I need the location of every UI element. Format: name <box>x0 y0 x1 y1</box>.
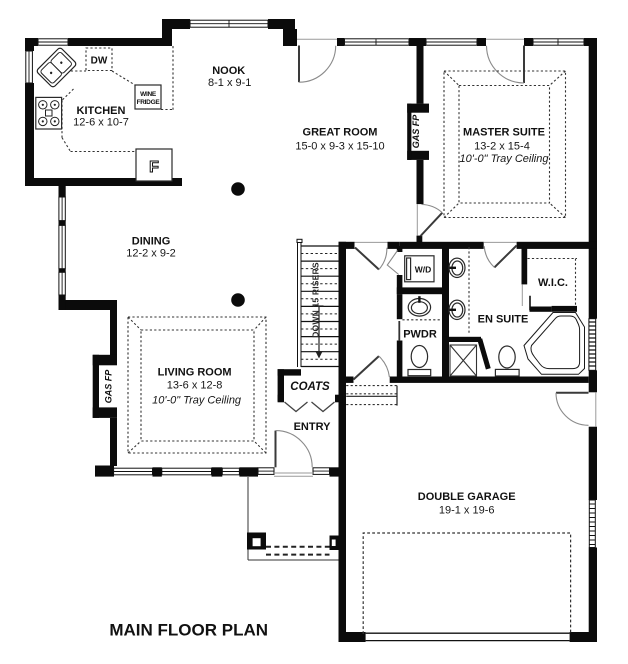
svg-text:EN SUITE: EN SUITE <box>478 314 529 326</box>
svg-text:KITCHEN: KITCHEN <box>77 105 126 117</box>
svg-text:15-0 x 9-3 x 15-10: 15-0 x 9-3 x 15-10 <box>295 141 384 153</box>
svg-text:MASTER SUITE: MASTER SUITE <box>463 127 545 139</box>
svg-text:GAS FP: GAS FP <box>411 114 421 149</box>
svg-text:DOUBLE GARAGE: DOUBLE GARAGE <box>418 491 516 503</box>
svg-text:F: F <box>149 159 159 176</box>
svg-text:DOWN 15 RISERS: DOWN 15 RISERS <box>311 262 321 338</box>
svg-text:19-1 x 19-6: 19-1 x 19-6 <box>439 505 495 517</box>
svg-text:13-6 x 12-8: 13-6 x 12-8 <box>167 380 223 392</box>
svg-text:W/D: W/D <box>415 264 432 274</box>
svg-text:12-6 x 10-7: 12-6 x 10-7 <box>73 117 129 129</box>
svg-text:8-1 x 9-1: 8-1 x 9-1 <box>208 77 251 89</box>
svg-text:DINING: DINING <box>132 235 171 247</box>
svg-text:DW: DW <box>91 56 108 67</box>
svg-text:12-2 x 9-2: 12-2 x 9-2 <box>126 247 176 259</box>
svg-text:ENTRY: ENTRY <box>294 421 332 433</box>
svg-text:10'-0" Tray Ceiling: 10'-0" Tray Ceiling <box>460 153 550 165</box>
svg-text:10'-0" Tray Ceiling: 10'-0" Tray Ceiling <box>152 395 242 407</box>
svg-text:MAIN FLOOR PLAN: MAIN FLOOR PLAN <box>109 621 268 640</box>
svg-text:GAS FP: GAS FP <box>103 369 113 404</box>
svg-text:WINE: WINE <box>140 91 157 98</box>
svg-text:PWDR: PWDR <box>403 329 437 341</box>
svg-text:13-2 x 15-4: 13-2 x 15-4 <box>474 141 530 153</box>
svg-text:FRIDGE: FRIDGE <box>137 99 161 106</box>
svg-text:COATS: COATS <box>290 381 330 393</box>
svg-text:GREAT ROOM: GREAT ROOM <box>303 127 378 139</box>
svg-text:NOOK: NOOK <box>212 65 245 77</box>
svg-text:LIVING ROOM: LIVING ROOM <box>158 367 232 379</box>
svg-text:W.I.C.: W.I.C. <box>538 277 568 289</box>
